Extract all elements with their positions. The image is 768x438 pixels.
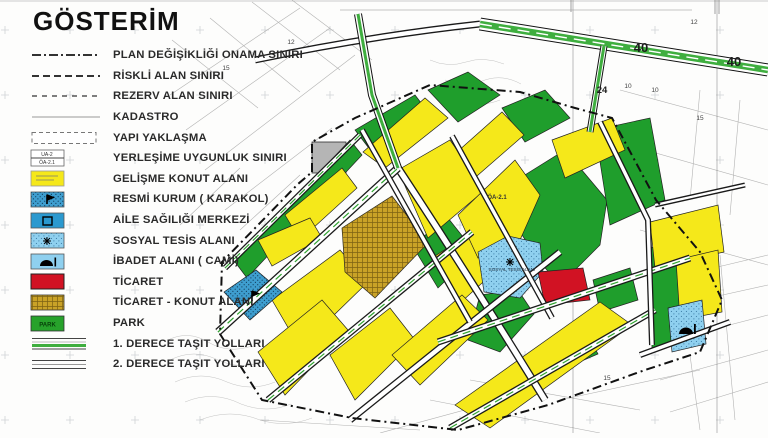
- legend-item-label: YAPI YAKLAŞMA: [113, 132, 207, 144]
- legend-item: REZERV ALAN SINIRI: [0, 86, 235, 107]
- symbol-road2-icon: [0, 357, 113, 372]
- legend-item: 1. DERECE TAŞIT YOLLARI: [0, 333, 235, 354]
- legend-item: PLAN DEĞİŞİKLİĞİ ONAMA SINIRI: [0, 45, 235, 66]
- svg-text:ÖA-2.1: ÖA-2.1: [39, 159, 55, 166]
- road-width-label: 12: [690, 19, 698, 26]
- legend-item-label: RİSKLİ ALAN SINIRI: [113, 70, 224, 82]
- legend-item: AİLE SAĞILIĞI MERKEZİ: [0, 210, 235, 231]
- park-swatch-icon: PARK: [30, 315, 66, 332]
- legend-item-label: TİCARET: [113, 276, 163, 288]
- symbol-thinline-icon: [0, 110, 113, 124]
- legend-item: UA-2ÖA-2.1 YERLEŞİME UYGUNLUK SINIRI: [0, 148, 235, 169]
- legend-item: YAPI YAKLAŞMA: [0, 127, 235, 148]
- symbol-yellowbox-icon: [0, 170, 113, 187]
- road-width-label: 12: [287, 39, 295, 46]
- legend-item-label: 1. DERECE TAŞIT YOLLARI: [113, 338, 265, 350]
- road-width-label: 10: [624, 83, 632, 90]
- symbol-parkbox-icon: PARK: [0, 315, 113, 332]
- secondary-road-symbol-icon: [30, 357, 88, 372]
- legend-item-label: 2. DERECE TAŞIT YOLLARI: [113, 358, 265, 370]
- legend-item-label: GELİŞME KONUT ALANI: [113, 173, 248, 185]
- symbol-uabox-icon: UA-2ÖA-2.1: [0, 149, 113, 167]
- legend-item-label: PLAN DEĞİŞİKLİĞİ ONAMA SINIRI: [113, 49, 303, 61]
- legend-item: KADASTRO: [0, 107, 235, 128]
- police-station-swatch-icon: [30, 191, 66, 208]
- legend-title: GÖSTERİM: [33, 6, 235, 37]
- road-width-label: 15: [696, 115, 704, 122]
- asterisk-icon: [506, 258, 514, 266]
- plan-boundary-symbol-icon: [30, 48, 102, 62]
- legend-item-label: KADASTRO: [113, 111, 179, 123]
- road-width-label: 40: [727, 54, 741, 69]
- primary-road-symbol-icon: [30, 336, 88, 351]
- mosque-icon: [30, 253, 66, 270]
- symbol-dashed-icon: [0, 69, 113, 83]
- social-facility-swatch-icon: [30, 232, 66, 249]
- legend-item-label: PARK: [113, 317, 145, 329]
- suitability-boundary-icon: UA-2ÖA-2.1: [30, 149, 66, 167]
- legend-item: TİCARET - KONUT ALANI: [0, 292, 235, 313]
- reserve-area-boundary-icon: [30, 89, 102, 103]
- legend-item: RİSKLİ ALAN SINIRI: [0, 66, 235, 87]
- legend-item: TİCARET: [0, 272, 235, 293]
- legend-item-label: SOSYAL TESİS ALANI: [113, 235, 235, 247]
- svg-text:PARK: PARK: [39, 322, 56, 328]
- legend-item-label: TİCARET - KONUT ALANI: [113, 296, 254, 308]
- symbol-ailebox-icon: [0, 212, 113, 229]
- symbol-redbox-icon: [0, 273, 113, 290]
- symbol-dashed2-icon: [0, 89, 113, 103]
- road-width-label: 10: [651, 87, 659, 94]
- legend-item-label: İBADET ALANI ( CAMİ): [113, 255, 239, 267]
- commerce-housing-swatch-icon: [30, 294, 66, 311]
- svg-text:UA-2: UA-2: [41, 152, 53, 158]
- legend-item-label: AİLE SAĞILIĞI MERKEZİ: [113, 214, 250, 226]
- legend-item-label: YERLEŞİME UYGUNLUK SINIRI: [113, 152, 287, 164]
- legend-item: GELİŞME KONUT ALANI: [0, 169, 235, 190]
- zone-label: SOSYAL TESİS ALANI: [489, 266, 536, 272]
- housing-area-swatch-icon: [30, 170, 66, 187]
- setback-box-icon: [30, 130, 102, 146]
- symbol-mosquebox-icon: [0, 253, 113, 270]
- family-health-swatch-icon: [30, 212, 66, 229]
- symbol-dashedbox-icon: [0, 130, 113, 146]
- road-width-label: 15: [603, 375, 611, 382]
- road-width-label: 24: [597, 85, 608, 96]
- legend-item: İBADET ALANI ( CAMİ): [0, 251, 235, 272]
- road-width-label: 40: [634, 40, 648, 55]
- legend-item: PARK PARK: [0, 313, 235, 334]
- legend-item-label: RESMİ KURUM ( KARAKOL): [113, 193, 269, 205]
- legend-item: SOSYAL TESİS ALANI: [0, 230, 235, 251]
- symbol-karakolbox-icon: [0, 191, 113, 208]
- legend-item: 2. DERECE TAŞIT YOLLARI: [0, 354, 235, 375]
- symbol-sosyalbox-icon: [0, 232, 113, 249]
- legend-item-label: REZERV ALAN SINIRI: [113, 90, 233, 102]
- legend-panel: GÖSTERİM PLAN DEĞİŞİKLİĞİ ONAMA SINIRI R…: [0, 0, 235, 375]
- commerce-swatch-icon: [30, 273, 66, 290]
- zone-label: ÖA-2.1: [487, 194, 507, 201]
- symbol-goldbox-icon: [0, 294, 113, 311]
- symbol-road1-icon: [0, 336, 113, 351]
- cadastre-line-icon: [30, 110, 102, 124]
- symbol-dashdot-icon: [0, 48, 113, 62]
- legend-item: RESMİ KURUM ( KARAKOL): [0, 189, 235, 210]
- risk-area-boundary-icon: [30, 69, 102, 83]
